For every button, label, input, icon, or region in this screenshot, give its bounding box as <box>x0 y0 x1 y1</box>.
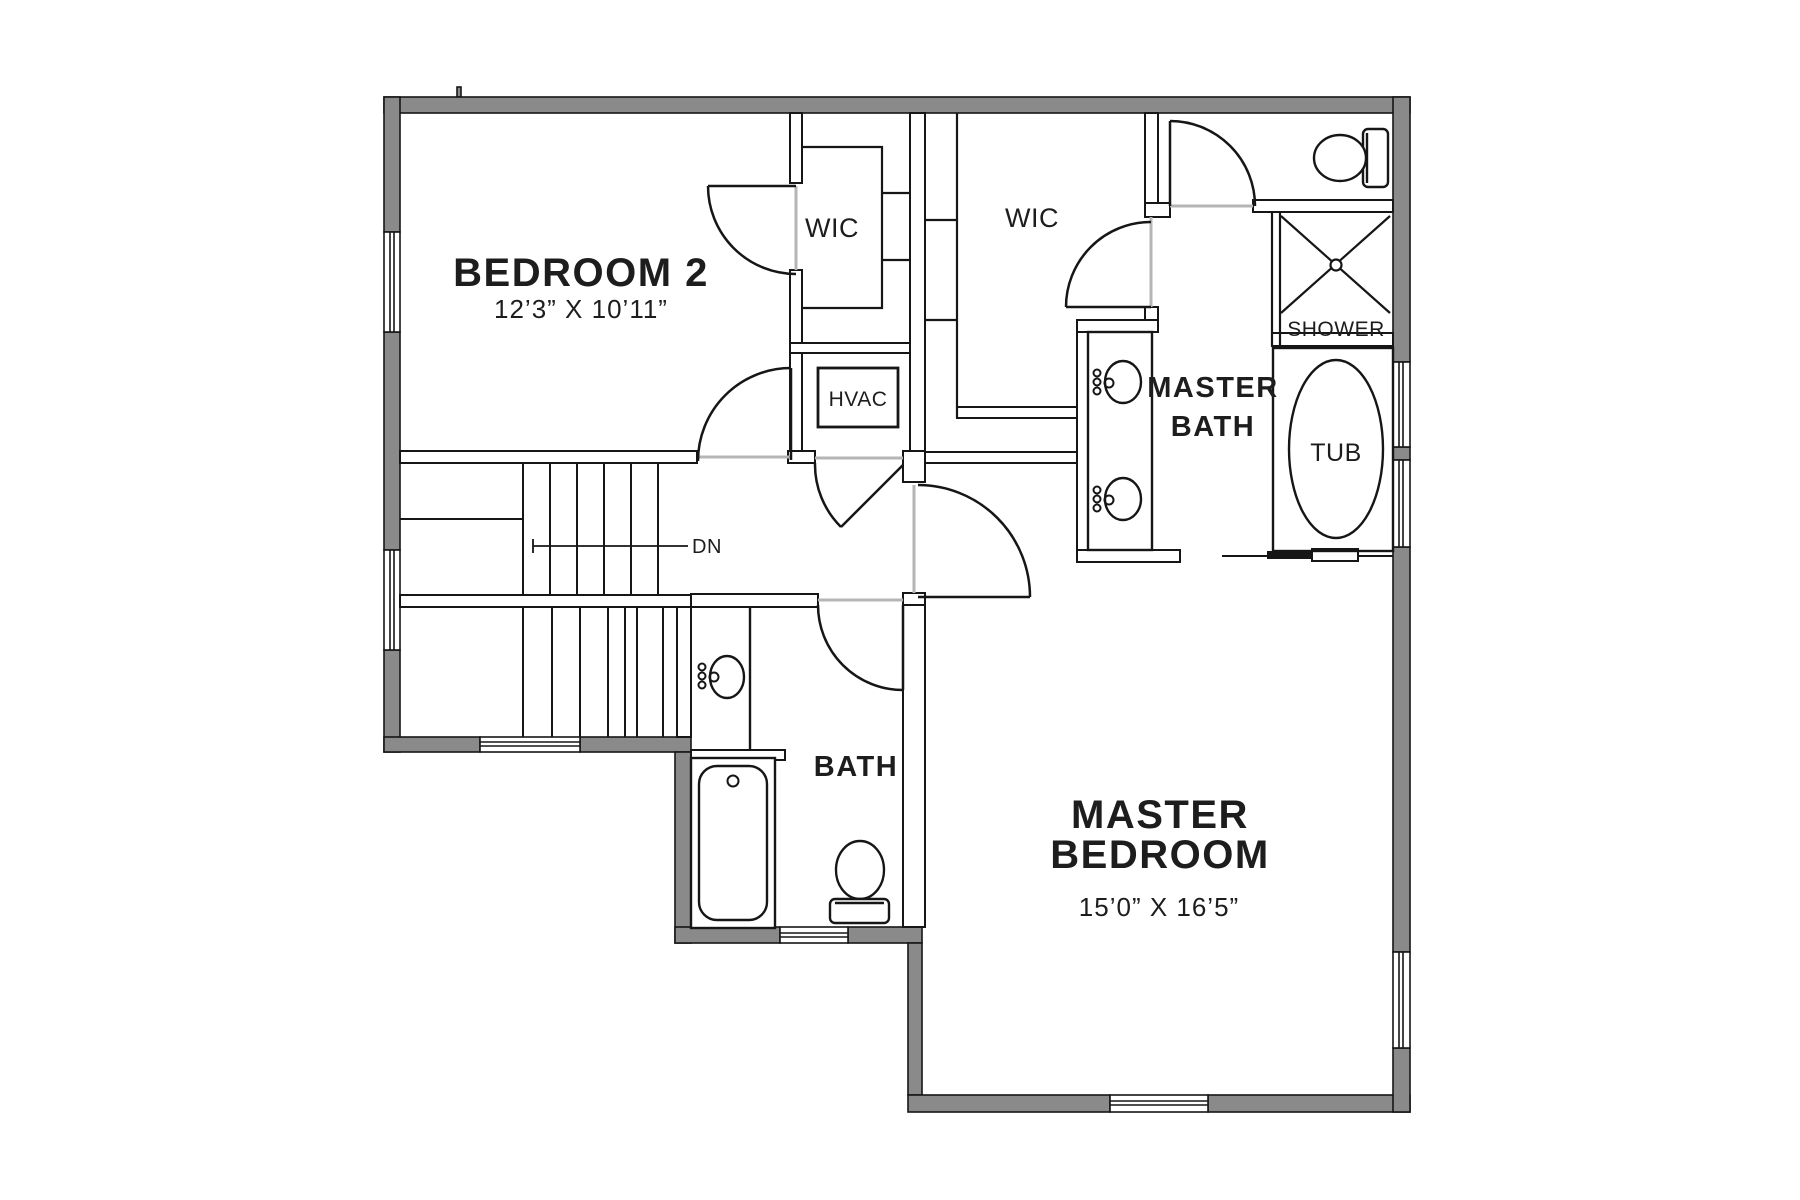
wall-mbr-bottom-1 <box>908 1095 1110 1112</box>
window <box>780 927 848 943</box>
window <box>1393 362 1410 447</box>
wall-left-2 <box>384 332 400 550</box>
wall-wic2-east <box>1145 113 1158 203</box>
bedroom2-dims: 12’3” X 10’11” <box>494 294 668 324</box>
master-bedroom-dims: 15’0” X 16’5” <box>1079 892 1239 922</box>
pocket-door-panel <box>1267 551 1312 559</box>
wall-bath-bottom-1 <box>675 927 780 943</box>
wall-wic2-south <box>957 407 1077 418</box>
floor-plan: BEDROOM 2 12’3” X 10’11” WIC WIC HVAC MA… <box>0 0 1800 1200</box>
wall-right-pier <box>1393 447 1410 460</box>
window <box>1393 460 1410 547</box>
shower-label: SHOWER <box>1287 318 1385 341</box>
window <box>1110 1095 1208 1112</box>
wall-mbath-south <box>1077 550 1180 562</box>
wall-bottom-left-1 <box>384 737 480 752</box>
stairs-dn-label: DN <box>692 536 722 558</box>
wall-mbr-west <box>908 943 922 1095</box>
bedroom2-label: BEDROOM 2 <box>453 251 709 295</box>
window <box>384 232 400 332</box>
wall-bath-bottom-2 <box>848 927 922 943</box>
wic1-label: WIC <box>805 213 859 243</box>
wall-right-3 <box>1393 1048 1410 1112</box>
master-bedroom-label-2: BEDROOM <box>1050 833 1269 877</box>
wall-wic1-west-2 <box>790 270 802 345</box>
wall-right-1 <box>1393 97 1410 362</box>
wall-right-2 <box>1393 547 1410 952</box>
tub-label: TUB <box>1310 439 1362 467</box>
wall-bottom-left-2 <box>580 737 691 752</box>
wall-bedroom2-south <box>400 451 697 463</box>
master-bath-label-1: MASTER <box>1147 372 1278 404</box>
room-stairs <box>400 463 691 737</box>
master-bedroom-label-1: MASTER <box>1071 793 1249 837</box>
wall-left-1 <box>384 97 400 232</box>
wall-mbr-bottom-2 <box>1208 1095 1410 1112</box>
wall-wic1-west-1 <box>790 113 802 183</box>
hvac-label: HVAC <box>829 388 888 411</box>
window <box>1393 952 1410 1048</box>
wall-tick <box>457 87 461 97</box>
wall-wic1-south <box>790 343 910 353</box>
wall-top <box>384 97 1410 113</box>
window <box>480 737 580 752</box>
wall-hall-north <box>925 452 1077 463</box>
room-hall <box>691 463 903 594</box>
room-water-closet <box>1158 113 1393 200</box>
wall-closet-divider <box>910 113 925 451</box>
bath-label: BATH <box>814 751 898 783</box>
window <box>384 550 400 650</box>
wall-wc-south <box>1253 200 1393 212</box>
wall-bath-east <box>903 605 925 927</box>
wall-bath-west <box>675 752 691 943</box>
wall-bath-north <box>691 594 818 607</box>
wic2-label: WIC <box>1005 203 1059 233</box>
master-bath-label-2: BATH <box>1171 411 1255 443</box>
wall-jamb-mbr-top <box>903 451 925 482</box>
